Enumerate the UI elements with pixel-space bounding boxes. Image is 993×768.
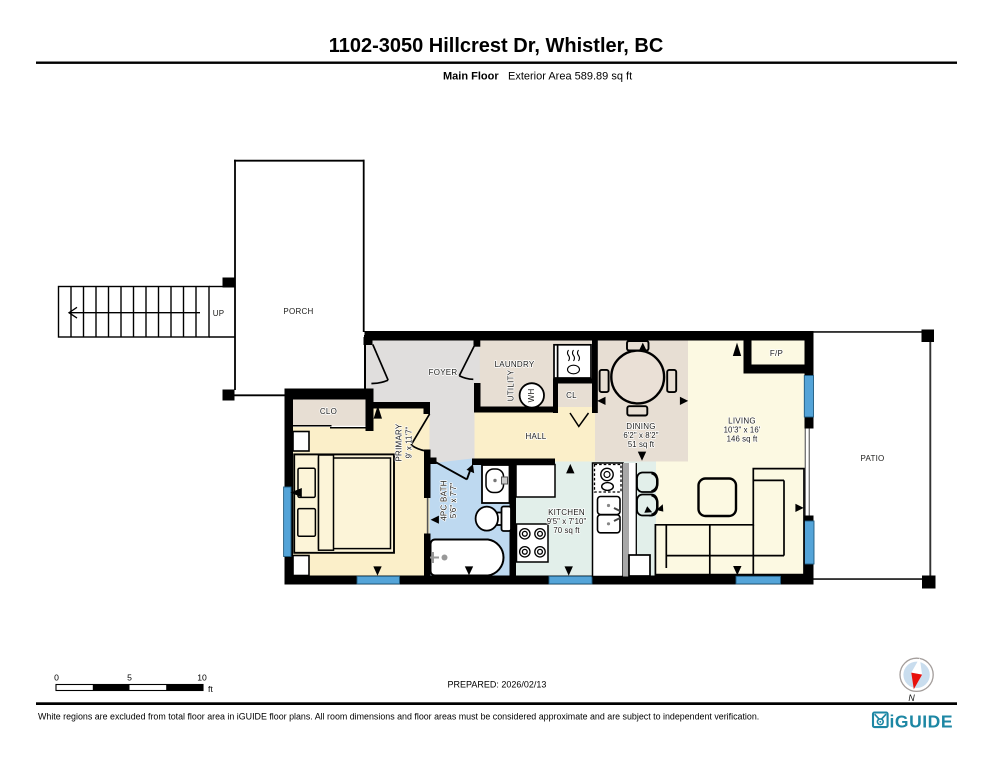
svg-text:KITCHEN: KITCHEN [548,508,585,517]
svg-text:146 sq ft: 146 sq ft [727,435,759,444]
svg-text:FOYER: FOYER [429,368,458,377]
svg-text:HALL: HALL [525,432,546,441]
svg-text:4PC BATH: 4PC BATH [440,480,449,521]
svg-text:9' x 11'7": 9' x 11'7" [405,427,414,459]
svg-text:1102-3050 Hillcrest Dr, Whistl: 1102-3050 Hillcrest Dr, Whistler, BC [329,35,664,57]
svg-text:N: N [908,693,915,703]
svg-text:70 sq ft: 70 sq ft [553,526,580,535]
svg-text:6'2" x 8'2": 6'2" x 8'2" [623,431,658,440]
svg-text:DINING: DINING [626,422,656,431]
svg-text:Main Floor: Main Floor [443,71,499,83]
svg-text:iGUIDE: iGUIDE [890,712,954,732]
svg-text:5: 5 [127,673,132,683]
svg-text:10: 10 [197,673,207,683]
svg-text:Exterior Area 589.89 sq ft: Exterior Area 589.89 sq ft [508,71,632,83]
svg-text:CL: CL [566,391,577,400]
svg-text:ft: ft [208,684,213,694]
svg-text:0: 0 [54,673,59,683]
svg-text:UP: UP [213,309,225,318]
svg-text:51 sq ft: 51 sq ft [628,440,655,449]
svg-text:PRIMARY: PRIMARY [395,423,404,461]
svg-text:F/P: F/P [770,349,783,358]
svg-text:PREPARED: 2026/02/13: PREPARED: 2026/02/13 [448,680,547,690]
svg-text:PATIO: PATIO [860,454,884,463]
svg-text:5'6" x 7'7": 5'6" x 7'7" [449,483,458,518]
svg-text:LIVING: LIVING [728,417,756,426]
svg-text:White regions are excluded fro: White regions are excluded from total fl… [38,712,759,722]
svg-text:PORCH: PORCH [283,307,313,316]
svg-text:LAUNDRY: LAUNDRY [495,360,535,369]
svg-text:UTILITY: UTILITY [507,369,516,401]
svg-text:9'5" x 7'10": 9'5" x 7'10" [547,517,587,526]
svg-text:CLO: CLO [320,407,337,416]
svg-text:10'3" x 16': 10'3" x 16' [724,426,761,435]
svg-text:WH: WH [527,388,536,402]
